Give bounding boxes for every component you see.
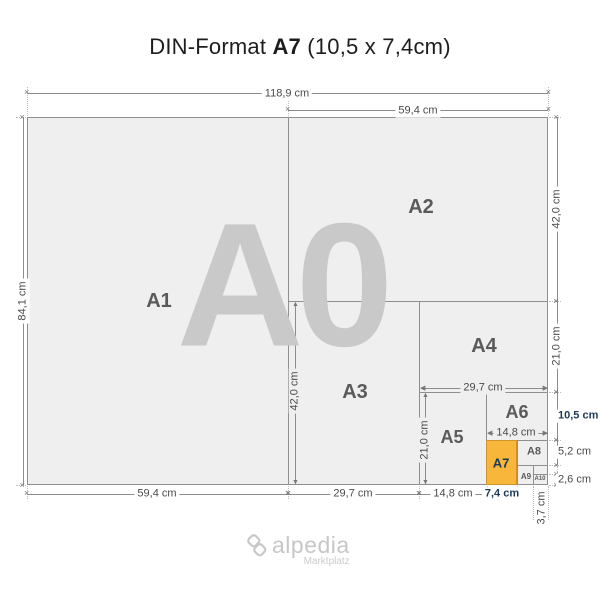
dim-label-total-height: 84,1 cm [17,278,30,323]
dim-label-a3-height-inner: 42,0 cm [289,368,302,413]
title-format-code: A7 [272,34,301,59]
dim-label-a6-width-inner: 14,8 cm [493,427,538,440]
divider-a9-a10 [533,465,534,485]
dim-label-a8-height: 5,2 cm [556,446,593,459]
title-prefix: DIN-Format [149,34,272,59]
brand-tagline: Marktplatz [272,557,350,567]
dim-label-a10-height: 2,6 cm [556,474,593,487]
page-title: DIN-Format A7 (10,5 x 7,4cm) [0,34,600,60]
dim-label-a3-width: 29,7 cm [330,488,375,501]
dim-label-a4-width-inner: 29,7 cm [460,382,505,395]
brand-text-block: alpedia Marktplatz [272,534,350,567]
size-label-a1: A1 [146,291,172,311]
size-label-a0: A0 [177,197,386,373]
size-label-a8: A8 [527,447,541,458]
size-label-a9: A9 [521,473,531,481]
title-suffix: (10,5 x 7,4cm) [301,34,451,59]
divider-a7-a8 [517,440,518,485]
dim-label-total-width: 118,9 cm [262,88,312,101]
brand-watermark: alpedia Marktplatz [246,534,350,567]
dim-label-a5-height-inner: 21,0 cm [419,417,432,462]
dim-label-a1-width: 59,4 cm [134,488,179,501]
din-format-diagram: DIN-Format A7 (10,5 x 7,4cm) A0 A1 A2 A3… [0,0,600,600]
dim-label-a5-width: 14,8 cm [430,488,475,501]
size-label-a5: A5 [440,428,463,446]
size-label-a6: A6 [505,403,528,421]
alpedia-logo-icon [246,534,268,559]
size-label-a7: A7 [493,457,510,470]
dim-label-a6-height: 10,5 cm [556,410,600,423]
dim-label-a4-height: 21,0 cm [551,323,564,368]
extension-line [533,486,534,520]
size-label-a10: A10 [534,476,545,482]
size-label-a3: A3 [342,382,368,402]
dim-label-a7-width: 7,4 cm [482,488,522,501]
divider-a10-top [533,474,548,475]
dim-label-a2-width: 59,4 cm [395,105,440,118]
size-label-a4: A4 [471,336,497,356]
dim-label-a2-height: 42,0 cm [551,186,564,231]
dim-label-a10-width: 3,7 cm [536,488,549,527]
size-label-a2: A2 [408,197,434,217]
brand-name: alpedia [272,534,350,557]
